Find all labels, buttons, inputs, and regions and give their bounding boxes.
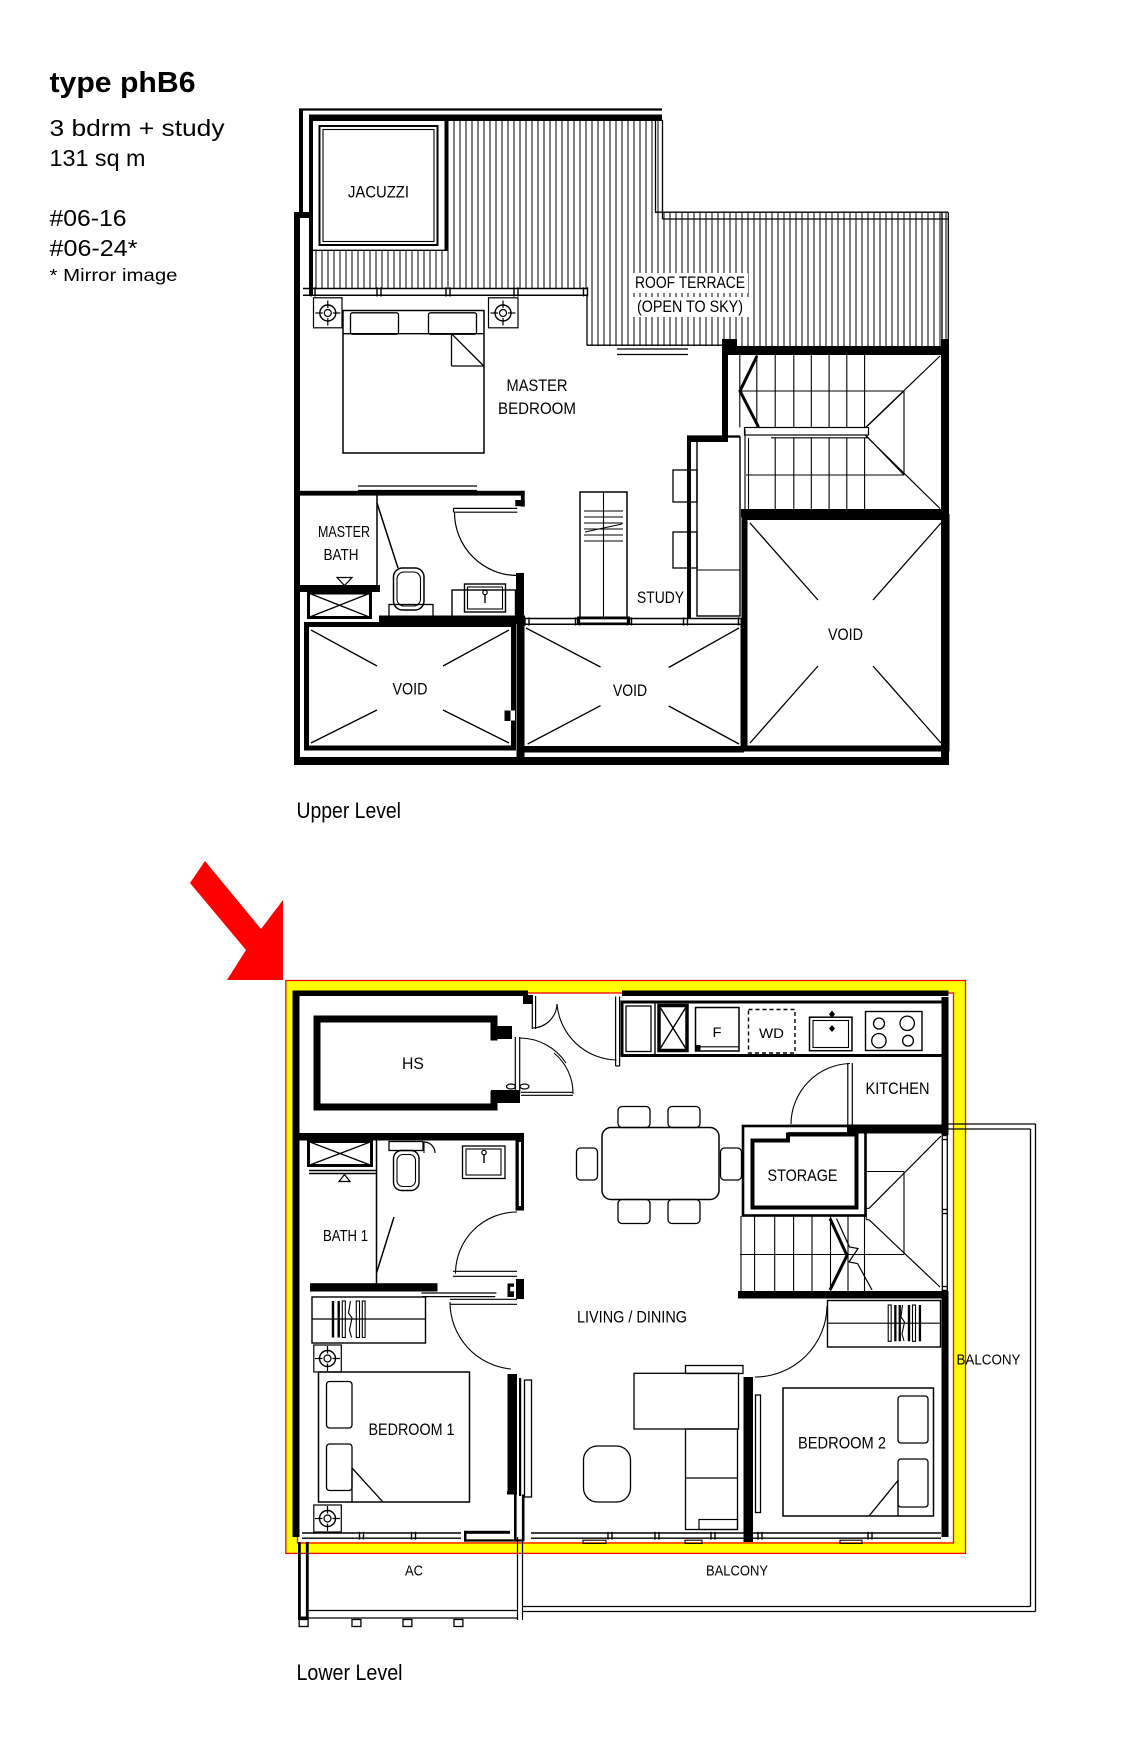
svg-text:131 sq m: 131 sq m — [50, 145, 146, 171]
svg-text:* Mirror image: * Mirror image — [50, 265, 178, 285]
svg-text:#06-16: #06-16 — [50, 205, 127, 231]
svg-text:VOID: VOID — [828, 625, 863, 644]
svg-text:STUDY: STUDY — [637, 588, 684, 607]
svg-text:JACUZZI: JACUZZI — [348, 183, 409, 202]
svg-text:(OPEN TO SKY): (OPEN TO SKY) — [637, 297, 743, 316]
svg-text:AC: AC — [405, 1563, 423, 1580]
svg-text:BEDROOM 1: BEDROOM 1 — [369, 1420, 455, 1439]
svg-text:#06-24*: #06-24* — [50, 235, 138, 261]
svg-text:F: F — [713, 1025, 722, 1040]
svg-text:BEDROOM: BEDROOM — [498, 399, 576, 418]
svg-text:WD: WD — [759, 1026, 784, 1041]
svg-text:BATH 1: BATH 1 — [323, 1228, 368, 1245]
svg-text:MASTER: MASTER — [507, 376, 568, 395]
svg-text:BATH: BATH — [324, 547, 359, 564]
svg-text:VOID: VOID — [393, 680, 428, 699]
svg-text:Lower Level: Lower Level — [297, 1660, 403, 1685]
svg-text:Upper Level: Upper Level — [297, 798, 402, 823]
svg-text:ROOF TERRACE: ROOF TERRACE — [635, 273, 745, 292]
svg-text:3 bdrm + study: 3 bdrm + study — [50, 115, 225, 141]
svg-text:BEDROOM 2: BEDROOM 2 — [798, 1434, 886, 1453]
svg-text:HS: HS — [402, 1054, 424, 1073]
svg-text:BALCONY: BALCONY — [957, 1352, 1021, 1369]
svg-text:STORAGE: STORAGE — [768, 1166, 838, 1185]
svg-text:MASTER: MASTER — [318, 524, 370, 541]
svg-text:LIVING / DINING: LIVING / DINING — [577, 1308, 687, 1327]
svg-text:BALCONY: BALCONY — [706, 1563, 768, 1580]
svg-text:type phB6: type phB6 — [50, 67, 196, 99]
svg-text:VOID: VOID — [613, 681, 647, 700]
svg-text:KITCHEN: KITCHEN — [866, 1079, 930, 1098]
